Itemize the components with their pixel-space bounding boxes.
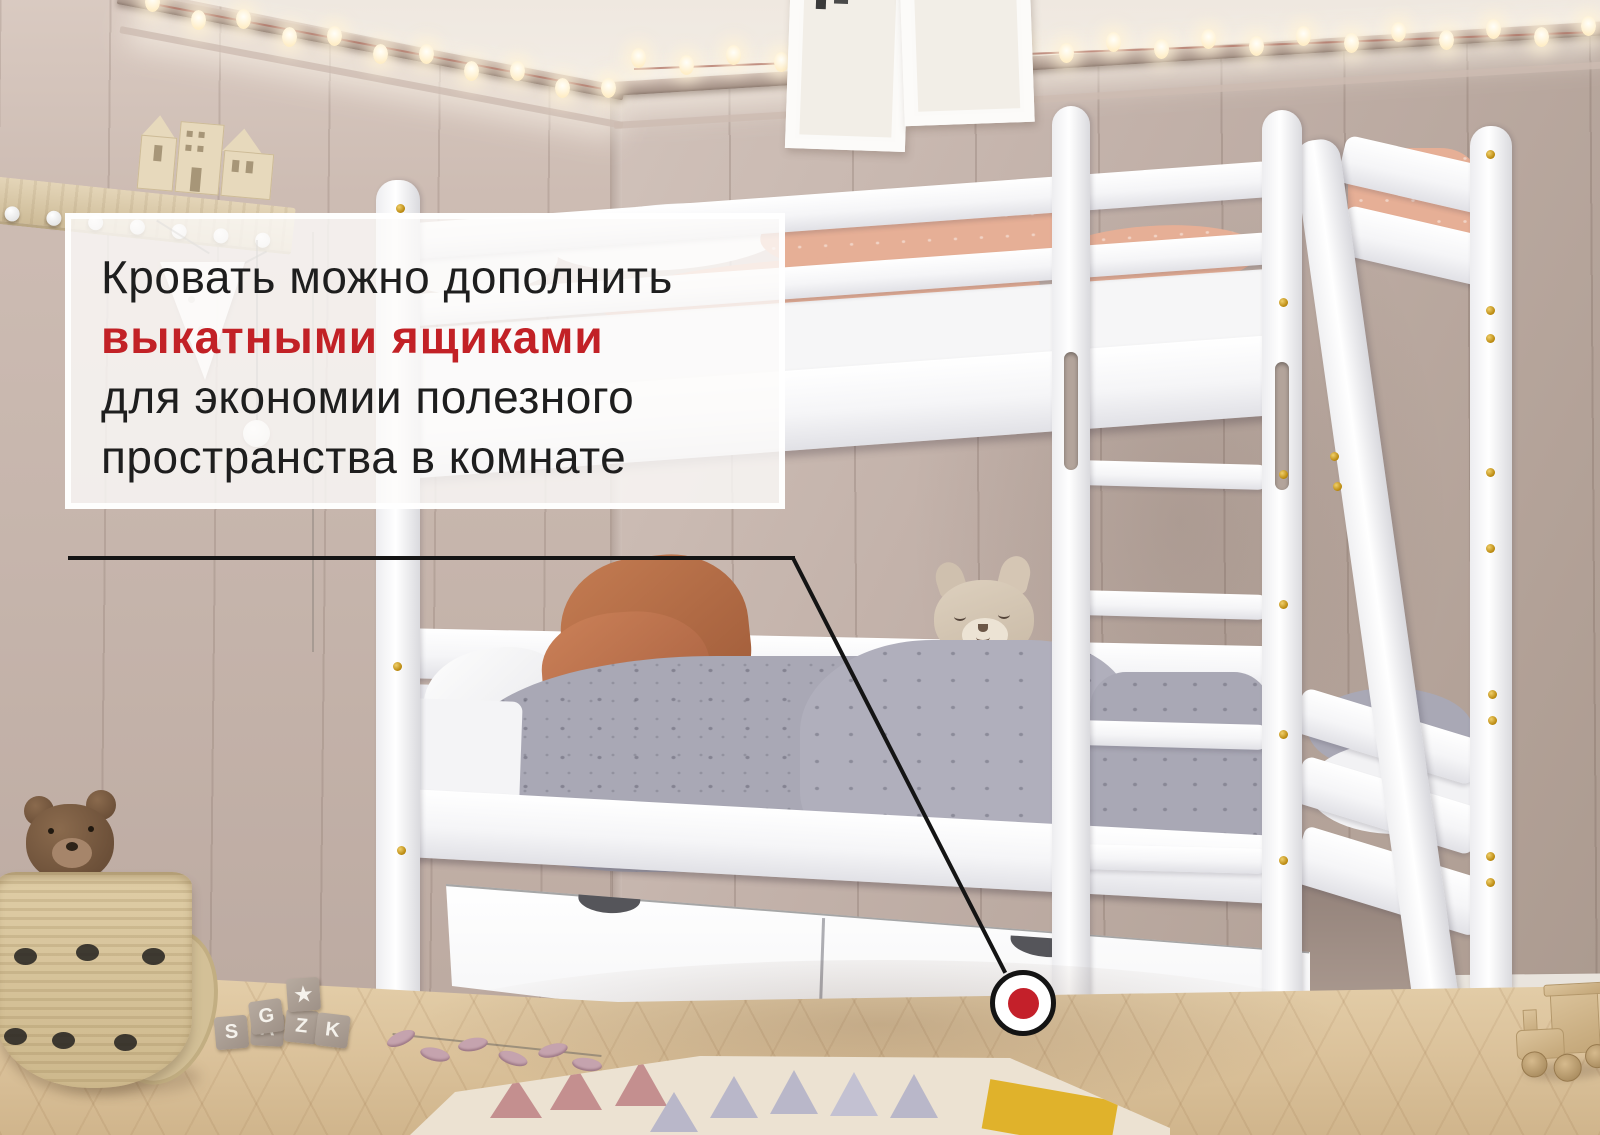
toy-block: ★ (286, 977, 321, 1012)
toy-train (1513, 982, 1600, 1091)
screw (1486, 150, 1495, 159)
bear-eye (88, 826, 94, 832)
toy-block: K (314, 1012, 351, 1049)
block-letter: Z (294, 1014, 309, 1038)
annotation-line-1: Кровать можно дополнить (101, 247, 779, 307)
basket-dot (52, 1032, 75, 1049)
basket-dot (76, 944, 99, 961)
ladder-stile-left (1052, 106, 1090, 1030)
toy-block: G (248, 998, 285, 1035)
bear-head (26, 804, 114, 882)
block-letter: K (324, 1018, 341, 1043)
screw (1279, 730, 1288, 739)
rug-triangle (710, 1076, 758, 1118)
red-dot-marker (1008, 988, 1039, 1019)
basket-dot (114, 1034, 137, 1051)
screw (1486, 544, 1495, 553)
screw (1486, 878, 1495, 887)
bear-nose (66, 842, 78, 851)
screw (397, 846, 406, 855)
annotation-line-2-highlight: выкатными ящиками (101, 307, 779, 367)
annotation-line-4: пространства в комнате (101, 427, 779, 487)
ladder-stile-right (1262, 110, 1302, 1040)
rug-triangle (770, 1070, 818, 1114)
doll-nose (978, 624, 988, 632)
screw (1330, 452, 1339, 461)
screw (1486, 334, 1495, 343)
basket-dot (142, 948, 165, 965)
rug-triangle (650, 1092, 698, 1132)
drawer-handle-left (578, 894, 641, 915)
duvet (1090, 672, 1270, 852)
rug-triangle (890, 1074, 938, 1118)
annotation-box: Кровать можно дополнить выкатными ящикам… (65, 213, 785, 509)
ladder-rung (1078, 720, 1271, 750)
screw (1279, 856, 1288, 865)
screw (1279, 600, 1288, 609)
ladder-handhold (1064, 352, 1078, 470)
screw (1279, 298, 1288, 307)
basket-dot (4, 1028, 27, 1045)
ladder-rung (1078, 590, 1271, 620)
screw (1279, 470, 1288, 479)
bed-post-rear-right (1470, 126, 1512, 992)
basket-dot (14, 948, 37, 965)
rug-triangle (830, 1072, 878, 1116)
block-letter: ★ (294, 981, 314, 1007)
bear-eye (48, 828, 54, 834)
doll-eye (954, 612, 966, 621)
annotation-line-3: для экономии полезного (101, 367, 779, 427)
callout-line-horizontal (68, 556, 795, 560)
screw (1488, 716, 1497, 725)
screw (393, 662, 402, 671)
ladder-rung (1078, 460, 1271, 490)
children-room-scene: PEACE (0, 0, 1600, 1135)
screw (1488, 690, 1497, 699)
toy-block: S (214, 1015, 250, 1051)
block-letter: G (257, 1004, 276, 1029)
drawer-marker (990, 970, 1056, 1036)
block-letter: S (224, 1020, 239, 1044)
screw (1486, 852, 1495, 861)
doll-eye (998, 610, 1010, 619)
screw (396, 204, 405, 213)
screw (1486, 468, 1495, 477)
ladder-rung (1078, 844, 1271, 874)
storage-basket (0, 872, 192, 1088)
screw (1333, 482, 1342, 491)
screw (1486, 306, 1495, 315)
